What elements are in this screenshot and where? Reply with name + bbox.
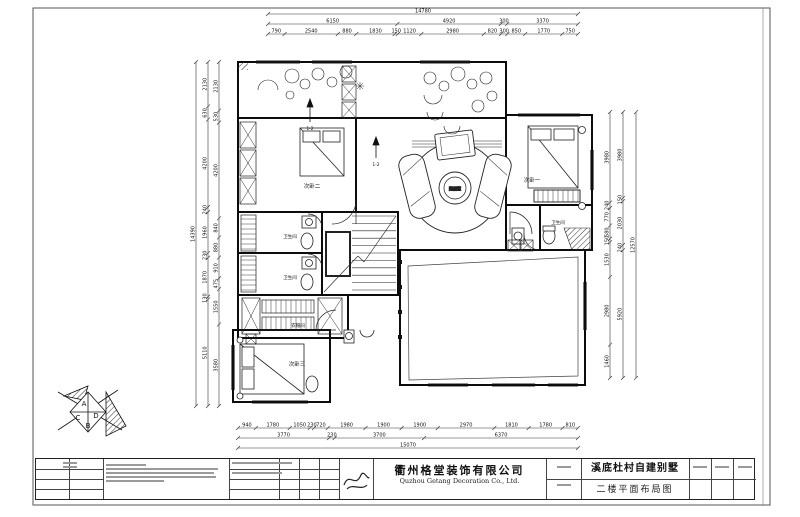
bed-bedroom2 bbox=[300, 128, 344, 176]
svg-text:1980: 1980 bbox=[340, 423, 353, 429]
svg-text:475: 475 bbox=[214, 279, 220, 289]
room-label-bedroom1: 次卧一 bbox=[524, 176, 541, 184]
terrace-plants bbox=[258, 66, 497, 134]
svg-text:5110: 5110 bbox=[203, 346, 209, 359]
svg-text:14780: 14780 bbox=[415, 9, 431, 15]
company-cell: 衢州格堂装饰有限公司 Quzhou Getang Decoration Co.,… bbox=[373, 459, 546, 501]
svg-text:1780: 1780 bbox=[539, 423, 552, 429]
compass-letter-b: B bbox=[86, 422, 91, 430]
dim-chain-right-total: 12570 bbox=[631, 110, 639, 380]
dim-chain-right-minor: 3980240770580150153029801460 bbox=[605, 110, 613, 380]
svg-text:5920: 5920 bbox=[618, 308, 624, 321]
svg-text:530: 530 bbox=[214, 112, 220, 122]
svg-text:240: 240 bbox=[618, 243, 624, 253]
svg-text:240: 240 bbox=[605, 201, 611, 211]
sitting-area: 起居室 bbox=[397, 130, 514, 233]
svg-text:790: 790 bbox=[272, 29, 282, 35]
svg-text:130: 130 bbox=[203, 293, 209, 303]
compass-logo: A D C B bbox=[58, 386, 126, 436]
revision-cells bbox=[229, 459, 339, 501]
drawing-title-cell: 二楼平面布局图 bbox=[581, 480, 689, 501]
sheet-frame bbox=[33, 8, 770, 505]
toilet-bath-mid2 bbox=[301, 274, 313, 290]
svg-text:1770: 1770 bbox=[537, 29, 550, 35]
svg-text:880: 880 bbox=[342, 29, 352, 35]
staircase bbox=[352, 216, 396, 290]
svg-text:1810: 1810 bbox=[505, 423, 518, 429]
svg-text:1960: 1960 bbox=[203, 226, 209, 239]
svg-text:3580: 3580 bbox=[214, 359, 220, 372]
dim-chain-bottom-minor: 9401780105023072019801900190029701810178… bbox=[236, 423, 580, 431]
svg-text:3770: 3770 bbox=[277, 433, 290, 439]
svg-text:150: 150 bbox=[618, 195, 624, 205]
room-label-bath-mid2: 卫生间 bbox=[283, 274, 297, 281]
svg-text:1900: 1900 bbox=[377, 423, 390, 429]
svg-text:3980: 3980 bbox=[605, 151, 611, 164]
svg-text:720: 720 bbox=[316, 423, 326, 429]
project-name: 溪底杜村自建别墅 bbox=[581, 459, 689, 479]
svg-text:2130: 2130 bbox=[203, 78, 209, 91]
svg-text:1780: 1780 bbox=[266, 423, 279, 429]
svg-text:1460: 1460 bbox=[605, 355, 611, 368]
svg-text:230: 230 bbox=[327, 433, 337, 439]
svg-text:910: 910 bbox=[214, 263, 220, 273]
room-label-bedroom2: 次卧二 bbox=[304, 182, 321, 190]
svg-text:230: 230 bbox=[203, 251, 209, 261]
svg-text:2540: 2540 bbox=[305, 29, 318, 35]
compass-letter-d: D bbox=[93, 412, 98, 420]
sink-bath-mid1 bbox=[302, 216, 316, 228]
svg-text:630: 630 bbox=[203, 108, 209, 118]
svg-text:150: 150 bbox=[391, 29, 401, 35]
label-cells bbox=[546, 459, 581, 501]
dim-chain-top-total: 14780 bbox=[266, 9, 580, 17]
svg-text:2980: 2980 bbox=[446, 29, 459, 35]
toilet-bath-right bbox=[543, 226, 555, 244]
sink-bath-mid2 bbox=[302, 257, 316, 269]
shower-area bbox=[564, 228, 590, 250]
notes-cell bbox=[103, 459, 229, 501]
svg-text:940: 940 bbox=[242, 423, 252, 429]
svg-text:1120: 1120 bbox=[403, 29, 416, 35]
toilet-bath-mid1 bbox=[301, 233, 313, 249]
dim-chain-left-major: 21306304200240196023018701305110 bbox=[203, 60, 211, 408]
company-name-en: Quzhou Getang Decoration Co., Ltd. bbox=[373, 477, 546, 486]
dim-chain-left-total: 14390 bbox=[191, 60, 199, 408]
meta-cell-2 bbox=[711, 459, 733, 480]
svg-text:580: 580 bbox=[605, 227, 611, 237]
meta-cell-1 bbox=[689, 459, 711, 480]
svg-text:6370: 6370 bbox=[495, 433, 508, 439]
signature bbox=[339, 459, 373, 501]
svg-text:820: 820 bbox=[488, 29, 498, 35]
section-label-1: 1-2 bbox=[306, 126, 313, 132]
drawing-sheet: 起居室 1-2 1-2 次卧二 次卧一 次卧三 卫生间 卫生间 卫生间 衣帽间 … bbox=[0, 0, 800, 517]
svg-text:2970: 2970 bbox=[460, 423, 473, 429]
approval-cells bbox=[36, 459, 103, 501]
dim-chain-bottom-major: 377023037006370 bbox=[236, 433, 580, 441]
room-label-sitting: 起居室 bbox=[449, 185, 461, 191]
svg-text:300: 300 bbox=[499, 19, 509, 25]
floor-plan-canvas: 起居室 1-2 1-2 次卧二 次卧一 次卧三 卫生间 卫生间 卫生间 衣帽间 … bbox=[0, 0, 800, 517]
svg-text:3700: 3700 bbox=[373, 433, 386, 439]
svg-text:2980: 2980 bbox=[605, 305, 611, 318]
svg-text:850: 850 bbox=[511, 29, 521, 35]
company-name-cn: 衢州格堂装饰有限公司 bbox=[373, 464, 546, 477]
void-room bbox=[398, 257, 578, 380]
project-cell: 溪底杜村自建别墅 bbox=[581, 459, 689, 480]
svg-text:150: 150 bbox=[605, 236, 611, 246]
dim-chain-top-major: 615049203003370 bbox=[266, 19, 580, 27]
compass-letter-c: C bbox=[76, 414, 81, 422]
svg-text:12570: 12570 bbox=[631, 237, 637, 253]
svg-text:880: 880 bbox=[214, 243, 220, 253]
stair-landing bbox=[326, 232, 350, 276]
svg-text:810: 810 bbox=[566, 423, 576, 429]
dim-chain-top-minor: 7902540880183015011202980820300850177075… bbox=[266, 29, 580, 37]
svg-text:240: 240 bbox=[203, 205, 209, 215]
toilet-bedroom3 bbox=[306, 376, 318, 392]
svg-text:3980: 3980 bbox=[618, 149, 624, 162]
sink-corridor bbox=[344, 330, 374, 343]
dim-chain-right-major: 398015020302405920 bbox=[618, 110, 626, 380]
svg-text:4200: 4200 bbox=[203, 157, 209, 170]
bed-bedroom3 bbox=[237, 337, 304, 399]
dim-chain-bottom-total: 15070 bbox=[236, 443, 580, 451]
svg-text:750: 750 bbox=[565, 29, 575, 35]
svg-text:1550: 1550 bbox=[214, 300, 220, 313]
svg-text:3370: 3370 bbox=[536, 19, 549, 25]
svg-text:840: 840 bbox=[214, 223, 220, 233]
svg-text:4200: 4200 bbox=[214, 164, 220, 177]
svg-text:1050: 1050 bbox=[293, 423, 306, 429]
svg-text:1530: 1530 bbox=[605, 253, 611, 266]
svg-text:2130: 2130 bbox=[214, 80, 220, 93]
section-label-2: 1-2 bbox=[372, 162, 379, 168]
svg-text:1870: 1870 bbox=[203, 271, 209, 284]
title-block: 衢州格堂装饰有限公司 Quzhou Getang Decoration Co.,… bbox=[35, 458, 755, 500]
svg-text:300: 300 bbox=[499, 29, 509, 35]
svg-text:1900: 1900 bbox=[413, 423, 426, 429]
drawing-name: 二楼平面布局图 bbox=[581, 480, 689, 500]
room-label-bath-right: 卫生间 bbox=[551, 219, 565, 226]
room-label-cloak: 衣帽间 bbox=[291, 322, 305, 329]
terrace-bench bbox=[258, 80, 278, 90]
room-label-bedroom3: 次卧三 bbox=[289, 360, 306, 368]
dim-chain-left-minor: 2130530420084088091047515503580 bbox=[214, 60, 222, 408]
meta-cell-3 bbox=[733, 459, 756, 480]
svg-text:6150: 6150 bbox=[326, 19, 339, 25]
compass-letter-a: A bbox=[82, 400, 87, 408]
svg-text:15070: 15070 bbox=[400, 443, 416, 449]
svg-text:14390: 14390 bbox=[191, 226, 197, 242]
svg-text:4920: 4920 bbox=[443, 19, 456, 25]
svg-text:1830: 1830 bbox=[369, 29, 382, 35]
svg-text:770: 770 bbox=[605, 212, 611, 222]
room-label-bath-mid1: 卫生间 bbox=[283, 233, 297, 240]
svg-text:2030: 2030 bbox=[618, 217, 624, 230]
